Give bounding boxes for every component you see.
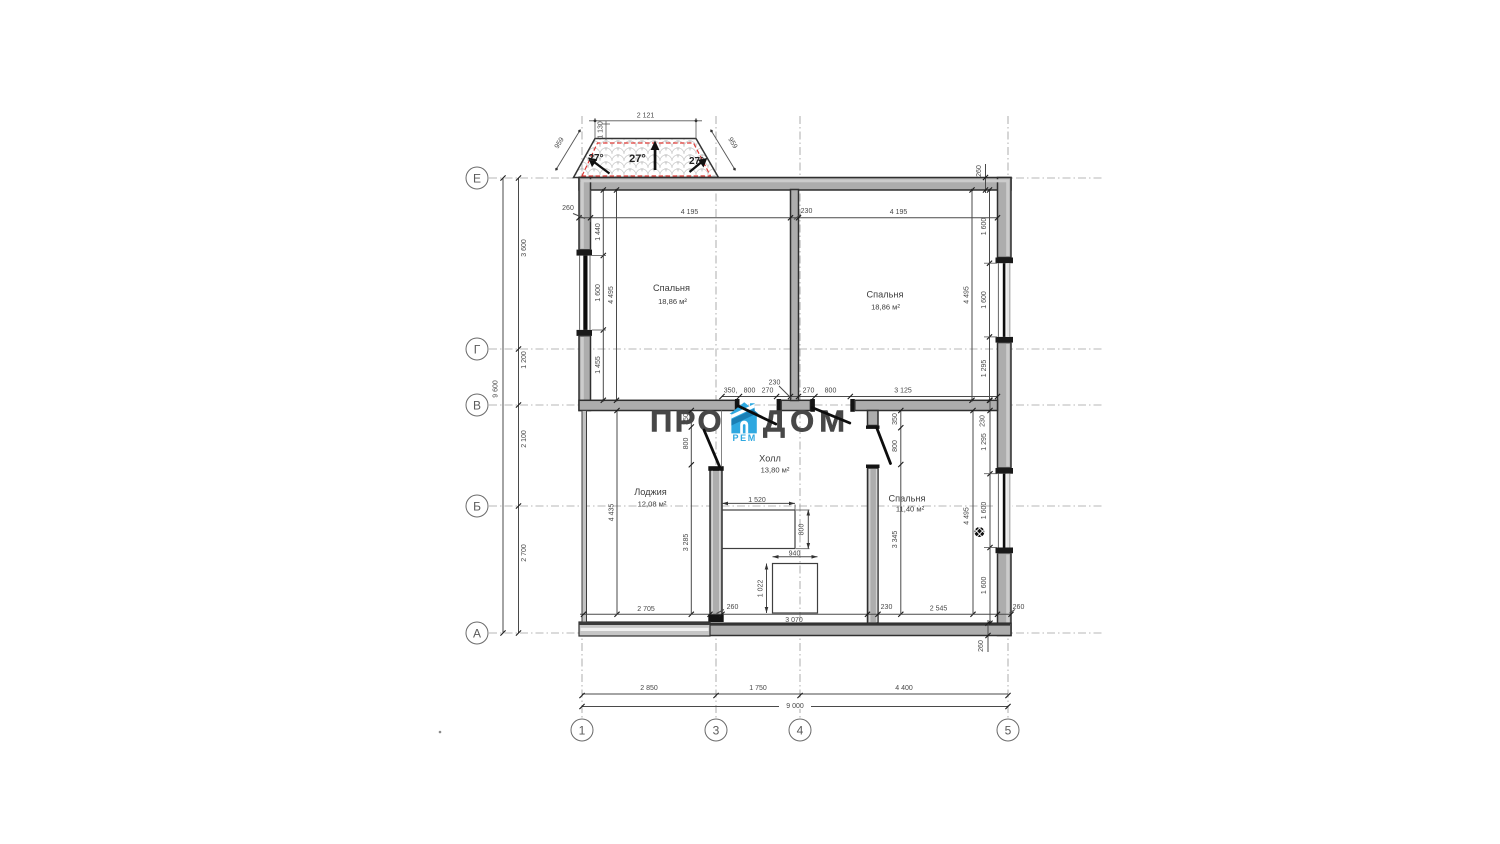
svg-text:РЕМ: РЕМ (733, 433, 757, 443)
svg-text:3 345: 3 345 (892, 531, 899, 549)
svg-text:260: 260 (727, 604, 739, 611)
svg-text:5: 5 (1005, 724, 1012, 738)
svg-text:350: 350 (683, 413, 690, 425)
svg-text:1 022: 1 022 (758, 580, 765, 598)
svg-text:4 195: 4 195 (890, 209, 908, 216)
svg-text:800: 800 (683, 438, 690, 450)
svg-text:1 440: 1 440 (595, 223, 602, 241)
svg-text:1 295: 1 295 (981, 433, 988, 451)
svg-text:4 495: 4 495 (964, 286, 971, 304)
svg-text:27°: 27° (689, 156, 704, 167)
svg-text:800: 800 (799, 524, 806, 536)
svg-text:Спальня: Спальня (889, 494, 926, 504)
svg-text:3 070: 3 070 (785, 617, 803, 624)
svg-text:2 705: 2 705 (637, 606, 655, 613)
svg-text:1 520: 1 520 (748, 497, 766, 504)
svg-text:Б: Б (473, 500, 481, 514)
svg-text:2 100: 2 100 (521, 430, 528, 448)
svg-text:2 700: 2 700 (521, 544, 528, 562)
svg-text:260: 260 (978, 640, 985, 652)
svg-text:4 195: 4 195 (681, 209, 699, 216)
svg-text:1 600: 1 600 (981, 291, 988, 309)
svg-text:800: 800 (825, 388, 837, 395)
svg-text:230: 230 (980, 415, 987, 427)
svg-text:1 295: 1 295 (981, 360, 988, 378)
svg-text:350: 350 (892, 413, 899, 425)
svg-text:4 495: 4 495 (964, 507, 971, 525)
svg-text:2 850: 2 850 (640, 685, 658, 692)
svg-text:260: 260 (562, 205, 574, 212)
svg-text:Е: Е (473, 172, 481, 186)
svg-text:1 600: 1 600 (981, 576, 988, 594)
svg-text:12,08 м²: 12,08 м² (638, 500, 667, 509)
svg-text:27°: 27° (629, 153, 646, 165)
svg-text:4 495: 4 495 (608, 286, 615, 304)
svg-text:2 121: 2 121 (637, 113, 655, 120)
svg-text:800: 800 (892, 440, 899, 452)
svg-text:1 130: 1 130 (598, 121, 605, 139)
svg-text:4 400: 4 400 (895, 685, 913, 692)
svg-text:А: А (473, 627, 481, 641)
svg-text:3 600: 3 600 (521, 239, 528, 257)
svg-text:350,: 350, (724, 388, 738, 395)
svg-text:27°: 27° (588, 153, 603, 164)
svg-text:13,80 м²: 13,80 м² (761, 466, 790, 475)
svg-text:9 600: 9 600 (493, 380, 500, 398)
svg-text:270: 270 (803, 388, 815, 395)
svg-text:1 600: 1 600 (595, 284, 602, 302)
svg-text:ДОМ: ДОМ (763, 404, 850, 439)
svg-text:230: 230 (769, 380, 781, 387)
svg-text:230: 230 (881, 604, 893, 611)
svg-text:11,40 м²: 11,40 м² (896, 505, 925, 514)
svg-text:Спальня: Спальня (867, 290, 904, 300)
svg-text:В: В (473, 399, 481, 413)
svg-text:Спальня: Спальня (653, 283, 690, 293)
svg-text:4 435: 4 435 (609, 504, 616, 522)
svg-text:1 600: 1 600 (981, 502, 988, 520)
svg-text:940: 940 (789, 551, 801, 558)
svg-text:1 750: 1 750 (749, 685, 767, 692)
svg-text:1: 1 (579, 724, 586, 738)
svg-text:Г: Г (474, 343, 481, 357)
svg-text:18,86 м²: 18,86 м² (871, 303, 900, 312)
svg-text:800: 800 (744, 388, 756, 395)
svg-text:1 455: 1 455 (595, 356, 602, 374)
svg-text:4: 4 (797, 724, 804, 738)
svg-text:1 200: 1 200 (521, 351, 528, 369)
svg-text:260: 260 (976, 165, 983, 177)
svg-text:230: 230 (801, 208, 813, 215)
svg-text:Холл: Холл (759, 454, 781, 464)
svg-text:18,86 м²: 18,86 м² (658, 297, 687, 306)
svg-text:2 545: 2 545 (930, 606, 948, 613)
svg-text:1 600: 1 600 (981, 218, 988, 236)
svg-text:3 125: 3 125 (894, 388, 912, 395)
svg-text:270: 270 (762, 388, 774, 395)
svg-text:Лоджия: Лоджия (634, 487, 667, 497)
svg-text:3 285: 3 285 (683, 534, 690, 552)
svg-text:3: 3 (713, 724, 720, 738)
svg-text:9 000: 9 000 (786, 703, 804, 710)
